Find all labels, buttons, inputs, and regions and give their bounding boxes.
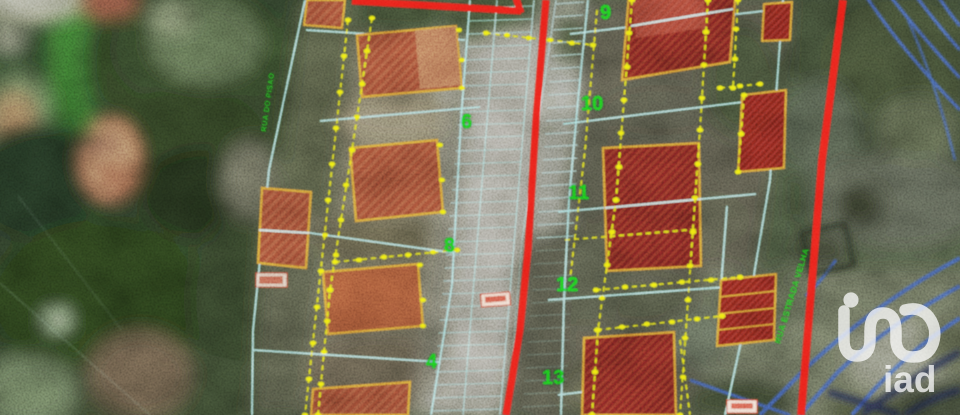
svg-text:iad: iad <box>883 359 936 400</box>
